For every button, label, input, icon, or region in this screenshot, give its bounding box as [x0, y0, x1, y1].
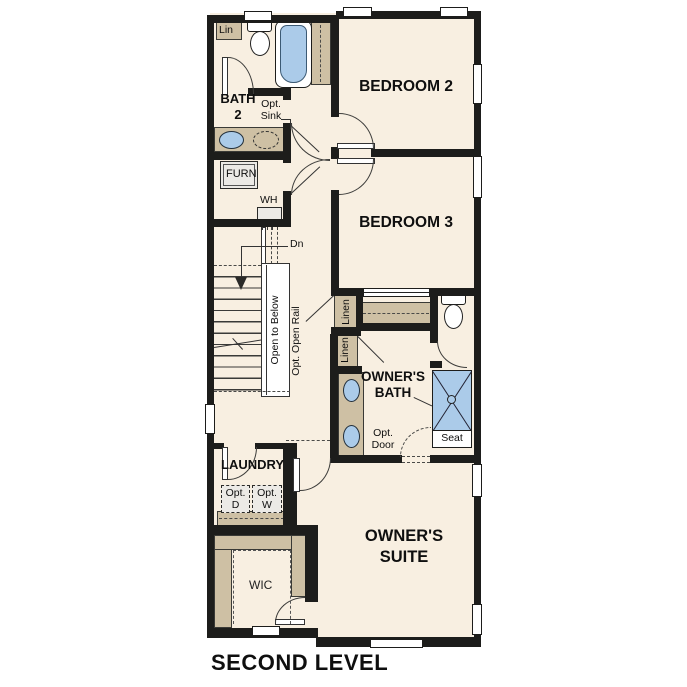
window — [440, 7, 468, 17]
wall — [430, 288, 438, 343]
wall — [371, 149, 481, 157]
owners-bath-sink-2 — [343, 425, 360, 448]
page-title: SECOND LEVEL — [211, 651, 388, 676]
optional-door-opening-dashed — [402, 456, 430, 463]
stair-dashed-top — [214, 265, 261, 266]
window — [370, 639, 423, 648]
closet-bypass-doors — [363, 288, 430, 297]
door-leaf-owners-suite — [293, 458, 300, 492]
opt-sink-leader-v — [290, 119, 291, 129]
label-opt-door: Opt. Door — [366, 428, 400, 452]
window — [343, 7, 372, 17]
hall-closet — [311, 22, 331, 85]
label-open-to-below: Open to Below — [270, 296, 282, 365]
wall — [356, 323, 432, 331]
floorplan-second-level: BEDROOM 2 BEDROOM 3 OWNER'S SUITE OWNER'… — [0, 0, 687, 687]
wic-shelf-right — [291, 535, 306, 597]
bath2-sink — [219, 131, 244, 149]
label-opt-dryer: Opt. D — [221, 488, 250, 512]
label-opt-door-line2: Door — [366, 440, 400, 452]
label-down: Dn — [290, 239, 303, 251]
label-opt-door-line1: Opt. — [366, 428, 400, 440]
wall — [207, 152, 291, 160]
window — [244, 11, 272, 21]
wall — [207, 15, 338, 23]
label-furnace: FURN — [226, 168, 257, 180]
toilet-bowl-bath2 — [250, 31, 270, 56]
wall — [430, 361, 442, 368]
label-linen-lower: Linen — [340, 337, 352, 363]
window — [473, 156, 482, 198]
wall — [430, 455, 481, 463]
room-label-owners-suite-line1: OWNER'S — [330, 526, 478, 547]
wall — [330, 455, 402, 463]
room-label-owners-suite: OWNER'S SUITE — [330, 526, 478, 567]
down-leader-horizontal — [241, 246, 288, 247]
room-label-wic: WIC — [249, 579, 272, 592]
room-label-owners-bath: OWNER'S BATH — [352, 369, 434, 401]
label-seat: Seat — [432, 433, 472, 445]
window — [252, 626, 280, 636]
label-linen-upper: Linen — [341, 299, 353, 325]
wall — [207, 525, 318, 535]
label-water-heater: WH — [260, 195, 278, 207]
room-label-bedroom3: BEDROOM 3 — [336, 214, 476, 231]
label-opt-open-rail: Opt. Open Rail — [291, 306, 303, 375]
label-opt-washer-line2: W — [252, 500, 282, 512]
wall — [331, 19, 339, 117]
label-opt-dryer-line1: Opt. — [221, 488, 250, 500]
hall-ceiling-break-dashed — [286, 440, 330, 441]
room-label-owners-suite-line2: SUITE — [330, 547, 478, 568]
laundry-counter-dashed — [219, 518, 284, 519]
down-leader-vertical — [241, 246, 242, 277]
wall — [305, 525, 318, 602]
window — [472, 604, 482, 635]
label-lin: Lin — [219, 25, 233, 37]
window — [472, 464, 482, 497]
room-label-owners-bath-line2: BATH — [352, 385, 434, 401]
label-opt-washer-line1: Opt. — [252, 488, 282, 500]
room-label-laundry: LAUNDRY — [221, 458, 284, 473]
room-label-owners-bath-line1: OWNER'S — [352, 369, 434, 385]
window — [205, 404, 215, 434]
toilet-bowl-owners-bath — [444, 304, 463, 329]
label-opt-sink: Opt. Sink — [255, 99, 287, 123]
stair-dashed-bottom — [214, 391, 290, 392]
label-opt-dryer-line2: D — [221, 500, 250, 512]
label-opt-sink-line2: Sink — [255, 111, 287, 123]
down-arrow — [235, 277, 247, 290]
shower-drain — [447, 395, 456, 404]
label-opt-sink-line1: Opt. — [255, 99, 287, 111]
room-label-bedroom2: BEDROOM 2 — [336, 78, 476, 95]
bath2-optional-sink-dashed — [253, 131, 279, 149]
bathtub-basin — [280, 25, 307, 83]
closet-rod-dashed — [320, 25, 321, 82]
wall — [330, 334, 338, 459]
wall — [331, 190, 339, 296]
label-opt-washer: Opt. W — [252, 488, 282, 512]
stair-rail-inner-line — [266, 265, 267, 395]
wall — [207, 15, 214, 635]
wall — [207, 219, 291, 227]
bedroom3-closet-rod-dashed — [363, 313, 429, 314]
